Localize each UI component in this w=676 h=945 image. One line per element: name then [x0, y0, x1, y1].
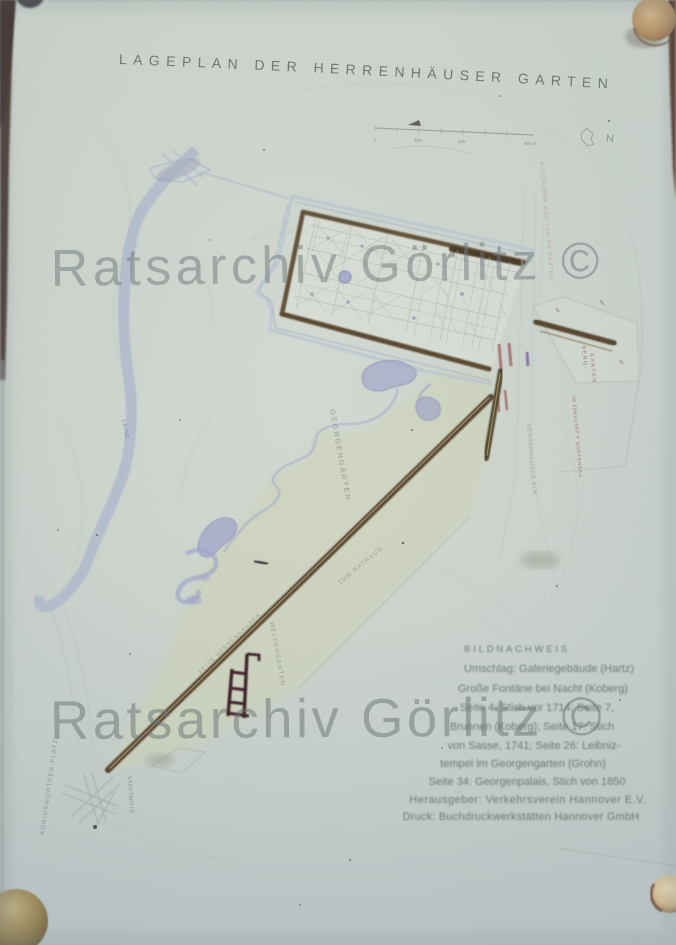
svg-text:Ratsarchiv Görlitz ©: Ratsarchiv Görlitz ©	[50, 232, 604, 298]
svg-text:Umschlag: Galeriegebäude (Hart: Umschlag: Galeriegebäude (Hartz)	[464, 663, 634, 675]
svg-text:BILDNACHWEIS: BILDNACHWEIS	[464, 644, 570, 655]
svg-text:N: N	[606, 133, 614, 145]
svg-text:Herausgeber: Verkehrsverein Ha: Herausgeber: Verkehrsverein Hannover E.V…	[409, 794, 646, 806]
svg-text:600 m: 600 m	[524, 141, 537, 146]
svg-text:200: 200	[414, 138, 422, 143]
svg-text:Seite 34: Georgenpalais, Stich: Seite 34: Georgenpalais, Stich von 1850	[429, 776, 626, 788]
svg-text:Ratsarchiv Görlitz ©: Ratsarchiv Görlitz ©	[50, 686, 606, 751]
svg-text:tempel im Georgengarten (Grohn: tempel im Georgengarten (Grohn)	[440, 758, 606, 770]
svg-text:Druck: Buchdruckwerkstätten Ha: Druck: Buchdruckwerkstätten Hannover Gmb…	[403, 811, 640, 823]
svg-text:400: 400	[458, 139, 466, 144]
